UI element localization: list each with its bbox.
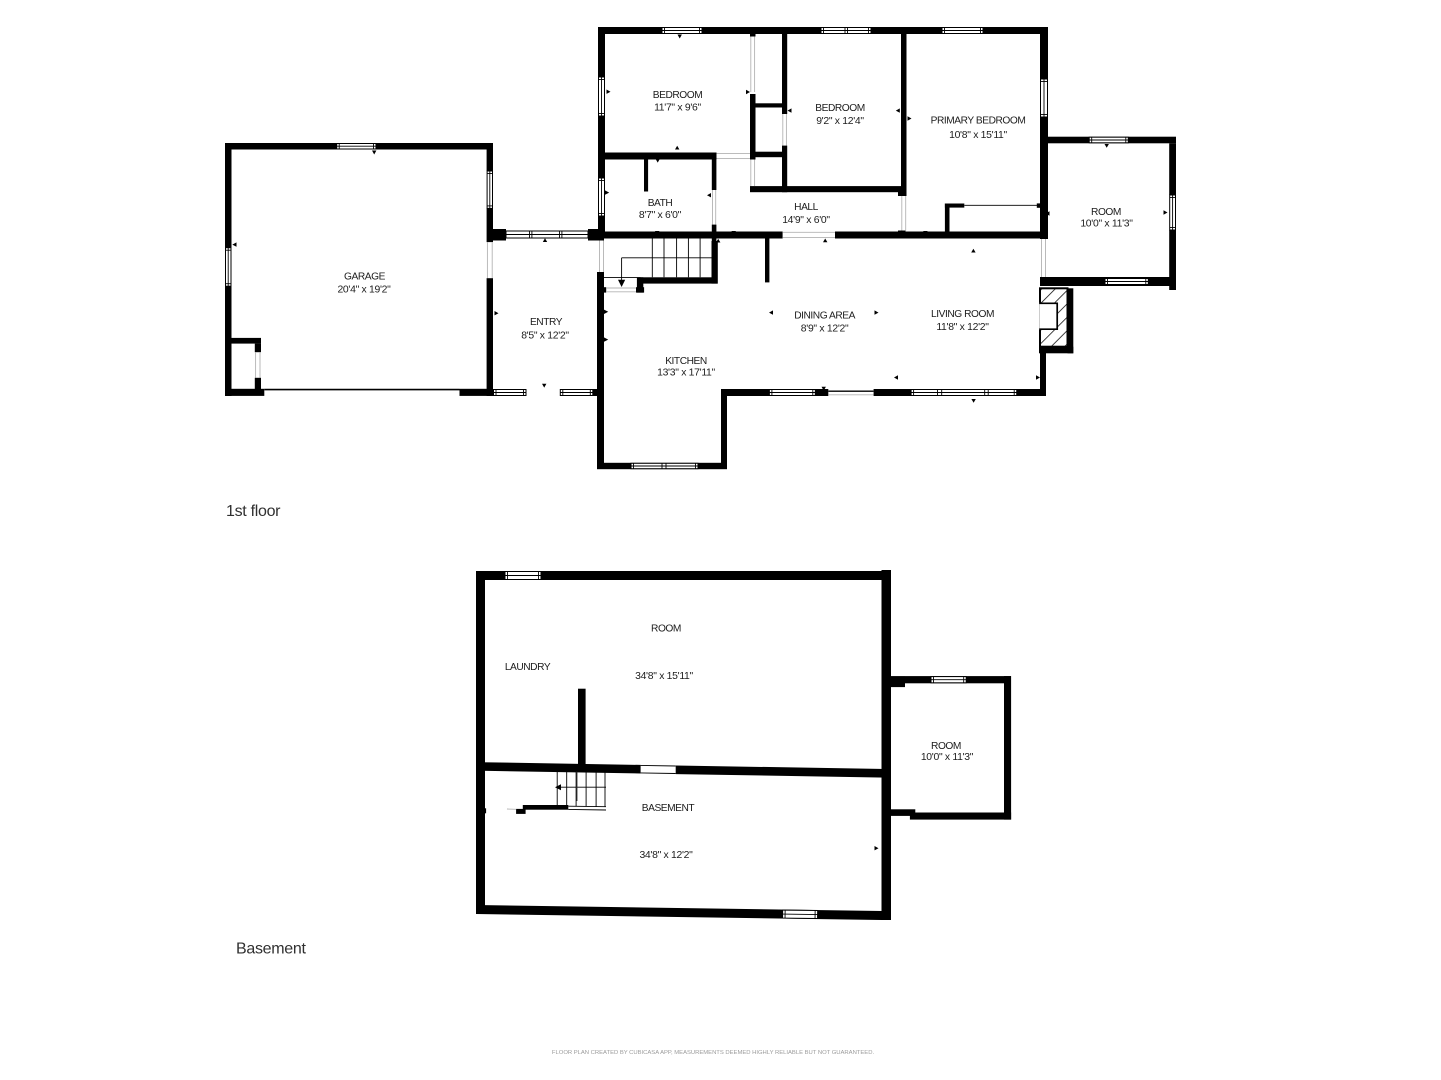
svg-text:10'0" x 11'3": 10'0" x 11'3": [1080, 219, 1133, 230]
svg-text:14'9" x 6'0": 14'9" x 6'0": [782, 215, 830, 226]
svg-text:8'9" x 12'2": 8'9" x 12'2": [801, 324, 849, 335]
svg-text:10'0" x 11'3": 10'0" x 11'3": [921, 752, 974, 763]
svg-text:20'4" x 19'2": 20'4" x 19'2": [337, 285, 391, 296]
svg-text:BEDROOM: BEDROOM: [815, 103, 865, 114]
svg-text:ROOM: ROOM: [651, 624, 681, 635]
svg-text:ENTRY: ENTRY: [530, 317, 563, 328]
svg-text:ROOM: ROOM: [931, 741, 961, 752]
svg-text:ROOM: ROOM: [1091, 207, 1121, 218]
svg-text:BEDROOM: BEDROOM: [653, 90, 703, 101]
svg-text:HALL: HALL: [794, 202, 818, 213]
svg-text:BASEMENT: BASEMENT: [642, 803, 695, 814]
svg-text:LIVING ROOM: LIVING ROOM: [931, 309, 994, 320]
svg-text:DINING AREA: DINING AREA: [794, 311, 855, 322]
svg-text:10'8" x 15'11": 10'8" x 15'11": [949, 130, 1007, 141]
svg-text:GARAGE: GARAGE: [344, 272, 386, 283]
svg-text:8'5" x 12'2": 8'5" x 12'2": [521, 331, 569, 342]
svg-text:34'8" x 12'2": 34'8" x 12'2": [639, 850, 693, 861]
svg-text:BATH: BATH: [648, 198, 673, 209]
svg-text:13'3" x 17'11": 13'3" x 17'11": [657, 368, 715, 379]
svg-text:PRIMARY BEDROOM: PRIMARY BEDROOM: [931, 116, 1026, 127]
svg-text:Basement: Basement: [236, 941, 306, 958]
svg-text:11'8" x 12'2": 11'8" x 12'2": [936, 322, 989, 333]
svg-text:9'2" x 12'4": 9'2" x 12'4": [816, 116, 864, 127]
svg-text:11'7" x 9'6": 11'7" x 9'6": [654, 103, 701, 114]
svg-text:8'7" x 6'0": 8'7" x 6'0": [639, 210, 682, 221]
svg-text:KITCHEN: KITCHEN: [665, 356, 707, 367]
svg-text:LAUNDRY: LAUNDRY: [505, 662, 551, 673]
svg-text:FLOOR PLAN CREATED BY CUBICASA: FLOOR PLAN CREATED BY CUBICASA APP, MEAS…: [552, 1050, 875, 1056]
svg-text:1st floor: 1st floor: [226, 503, 281, 520]
svg-text:34'8" x 15'11": 34'8" x 15'11": [635, 671, 693, 682]
